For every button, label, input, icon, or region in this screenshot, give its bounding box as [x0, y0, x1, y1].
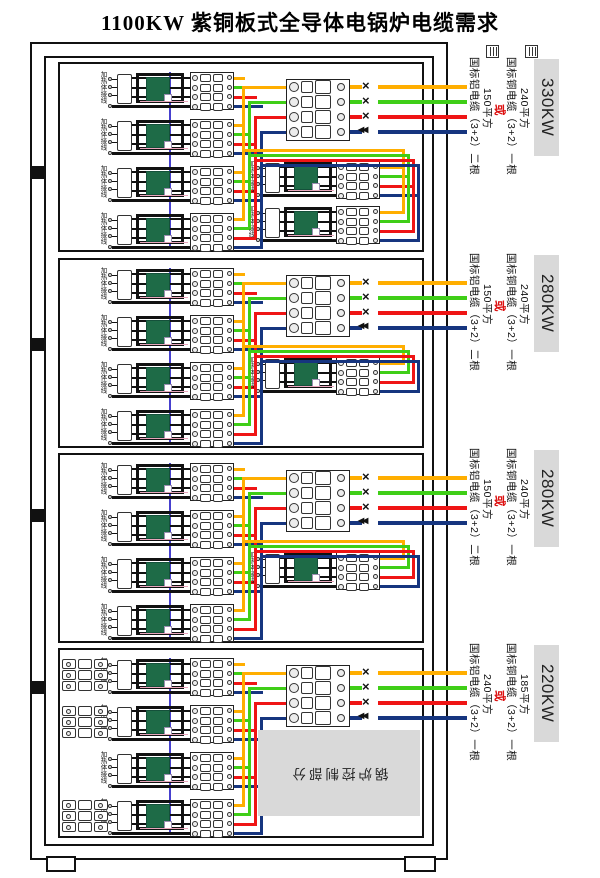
breaker-switch-body: [117, 801, 132, 831]
breaker-switch-body: [78, 822, 92, 832]
breaker-switch-body: [213, 121, 223, 129]
terminal-circle: [338, 219, 344, 225]
terminal-circle: [338, 379, 344, 385]
terminal-circle: [192, 495, 198, 501]
breaker-switch-body: [200, 726, 211, 734]
terminal-circle: [192, 617, 198, 623]
terminal-circle: [373, 209, 378, 214]
wire-blue-loop: [260, 555, 420, 558]
breaker-switch-body: [213, 178, 223, 186]
terminal-circle: [338, 183, 344, 189]
terminal-circle: [373, 238, 378, 243]
breaker-switch-body: [346, 237, 357, 245]
wire-red-loop: [254, 159, 415, 162]
breaker-switch-body: [78, 670, 92, 680]
terminal-circle: [227, 122, 232, 127]
terminal-circle: [337, 474, 345, 482]
heater-unit-label: 加热体接线: [97, 361, 106, 394]
terminal-circle: [192, 727, 198, 733]
copper-size-label: 240平方: [518, 479, 530, 520]
terminal-circle: [227, 85, 232, 90]
wire-red: [380, 576, 415, 579]
wire-red-out: [378, 115, 467, 119]
breaker-switch-body: [200, 820, 211, 828]
terminal-circle: [192, 708, 198, 714]
wire-green-trunk: [248, 493, 251, 620]
breaker-switch-body: [200, 541, 211, 549]
wire-pink: [140, 148, 188, 150]
terminal-circle: [227, 290, 232, 295]
wire-pink: [140, 828, 188, 830]
wire-pink: [288, 386, 334, 388]
breaker-switch-body: [213, 187, 223, 195]
breaker-switch-body: [301, 682, 313, 694]
wire-blue: [234, 246, 263, 249]
wire-black-bottom: [112, 246, 190, 248]
breaker-switch-body: [213, 299, 223, 307]
breaker-switch-body: [346, 573, 357, 581]
terminal-circle: [289, 82, 299, 92]
terminal-circle: [192, 94, 198, 100]
cable-joint-symbol: ×: [362, 78, 370, 93]
breaker-switch-body: [200, 364, 211, 372]
terminal-circle: [192, 802, 198, 808]
breaker-switch-body: [213, 131, 223, 139]
terminal-circle: [289, 503, 299, 513]
wire-black-bottom: [260, 390, 336, 392]
terminal-circle: [337, 714, 345, 722]
breaker-switch-body: [315, 471, 331, 485]
breaker-switch-body: [200, 512, 211, 520]
terminal-circle: [338, 584, 344, 590]
wire-blue: [260, 327, 286, 330]
breaker-switch-body: [359, 173, 369, 181]
terminal-circle: [227, 104, 232, 109]
breaker-switch-body: [117, 364, 132, 394]
terminal-circle: [373, 228, 378, 233]
breaker-switch-body: [200, 830, 211, 838]
terminal-circle: [227, 226, 232, 231]
wire-blue-out: [378, 326, 467, 330]
terminal-circle: [192, 188, 198, 194]
terminal-circle: [337, 699, 345, 707]
breaker-switch-body: [200, 811, 211, 819]
breaker-switch-body: [301, 96, 313, 108]
breaker-switch-body: [200, 606, 211, 614]
wire-pink: [140, 438, 188, 440]
breaker-switch-body: [213, 707, 223, 715]
breaker-switch-body: [213, 670, 223, 678]
breaker-switch-body: [346, 388, 357, 396]
terminal-circle: [192, 235, 198, 241]
breaker-switch-body: [359, 227, 369, 235]
heater-unit-label: 加热体接线: [97, 556, 106, 589]
breaker-switch-body: [315, 516, 331, 530]
terminal-circle: [338, 209, 344, 215]
breaker-switch-body: [213, 736, 223, 744]
heater-unit-label: 加热体接线: [97, 603, 106, 636]
wire-pink: [288, 235, 334, 237]
terminal-circle: [227, 179, 232, 184]
wire-red-out: [350, 311, 362, 315]
breaker-switch-body: [213, 197, 223, 205]
wire-pink: [140, 687, 188, 689]
terminal-circle: [227, 542, 232, 547]
terminal-circle: [192, 626, 198, 632]
breaker-switch-body: [117, 121, 132, 151]
copper-size-label: 240平方: [518, 284, 530, 325]
breaker-switch-body: [301, 487, 313, 499]
terminal-circle: [338, 174, 344, 180]
terminal-circle: [192, 661, 198, 667]
wire-black-bottom: [260, 585, 336, 587]
wire-pink: [140, 242, 188, 244]
terminal-circle: [338, 389, 344, 395]
wire-yellow-out: [350, 85, 362, 89]
breaker-switch-body: [200, 801, 211, 809]
terminal-circle: [192, 523, 198, 529]
wire-black-bottom: [112, 301, 190, 303]
breaker-switch-body: [315, 501, 331, 515]
breaker-switch-body: [200, 736, 211, 744]
terminal-circle: [227, 727, 232, 732]
wire-blue-loop: [260, 164, 420, 167]
breaker-switch-body: [359, 369, 369, 377]
breaker-switch-body: [346, 378, 357, 386]
breaker-switch-body: [213, 150, 223, 158]
terminal-circle: [289, 323, 299, 333]
breaker-switch-body: [213, 522, 223, 530]
terminal-circle: [192, 271, 198, 277]
or-label: 或: [492, 690, 505, 702]
terminal-circle: [289, 112, 299, 122]
breaker-switch-body: [117, 270, 132, 300]
terminal-circle: [227, 755, 232, 760]
terminal-circle: [227, 75, 232, 80]
breaker-switch-body: [213, 569, 223, 577]
terminal-circle: [192, 122, 198, 128]
breaker-switch-body: [200, 197, 211, 205]
copper-cable-label: 国标铜电缆（3+2）一根: [505, 57, 517, 175]
cable-core-line: [496, 47, 497, 56]
terminal-circle: [227, 495, 232, 500]
copper-cable-label: 国标铜电缆（3+2）一根: [505, 253, 517, 371]
breaker-switch-body: [213, 215, 223, 223]
breaker-switch-body: [200, 475, 211, 483]
breaker-switch-body: [200, 327, 211, 335]
breaker-switch-body: [301, 667, 313, 679]
breaker-switch-body: [213, 93, 223, 101]
breaker-switch-body: [315, 80, 331, 94]
breaker-switch-body: [346, 583, 357, 591]
wire-red-trunk: [254, 313, 257, 434]
terminal-circle: [337, 83, 345, 91]
breaker-switch-body: [359, 208, 369, 216]
wire-red: [254, 507, 286, 510]
terminal-circle: [227, 513, 232, 518]
terminal-circle: [227, 812, 232, 817]
wire-pink: [140, 586, 188, 588]
cable-core-line: [493, 47, 494, 56]
breaker-switch-body: [213, 512, 223, 520]
wire-red: [254, 312, 286, 315]
breaker-switch-body: [213, 84, 223, 92]
breaker-switch-body: [213, 364, 223, 372]
terminal-circle: [227, 281, 232, 286]
terminal-circle: [373, 370, 378, 375]
terminal-circle: [98, 673, 103, 678]
terminal-circle: [192, 560, 198, 566]
wire-red: [234, 487, 257, 490]
breaker-switch-body: [200, 93, 211, 101]
breaker-switch-body: [315, 696, 331, 710]
terminal-circle: [98, 662, 103, 667]
breaker-switch-body: [200, 531, 211, 539]
breaker-switch-body: [200, 74, 211, 82]
wire-black-bottom: [260, 239, 336, 241]
wire-green: [248, 297, 286, 300]
copper-cable-label: 国标铜电缆（3+2）一根: [505, 448, 517, 566]
wire-green-trunk: [248, 688, 251, 815]
terminal-circle: [227, 784, 232, 789]
terminal-circle: [192, 104, 198, 110]
alt-cable-label: 国标铝电缆（3+2）一根: [468, 643, 480, 761]
breaker-switch-body: [359, 388, 369, 396]
terminal-circle: [192, 198, 198, 204]
terminal-circle: [227, 412, 232, 417]
breaker-switch-body: [213, 289, 223, 297]
terminal-circle: [227, 94, 232, 99]
wire-yellow-trunk: [242, 673, 245, 805]
terminal-circle: [227, 718, 232, 723]
breaker-switch-body: [200, 150, 211, 158]
breaker-switch-body: [117, 512, 132, 542]
terminal-circle: [227, 671, 232, 676]
copper-cable-label: 国标铜电缆（3+2）一根: [505, 643, 517, 761]
wire-yellow-out: [378, 476, 467, 480]
terminal-circle: [227, 476, 232, 481]
wire-yellow: [242, 672, 286, 675]
wire-blue-trunk-right: [417, 165, 420, 241]
wire-black-bottom: [112, 832, 190, 834]
terminal-circle: [337, 489, 345, 497]
wire-green-out: [350, 686, 362, 690]
terminal-circle: [373, 389, 378, 394]
terminal-circle: [192, 281, 198, 287]
terminal-circle: [337, 684, 345, 692]
terminal-circle: [227, 422, 232, 427]
wire-black-bottom: [112, 691, 190, 693]
breaker-switch-body: [213, 374, 223, 382]
terminal-circle: [192, 245, 198, 251]
terminal-circle: [227, 245, 232, 250]
terminal-circle: [192, 300, 198, 306]
wire-red: [380, 230, 415, 233]
terminal-circle: [227, 169, 232, 174]
heater-unit-label: 加热体接线: [97, 314, 106, 347]
breaker-switch-body: [200, 522, 211, 530]
heater-unit-label: 加热体接线: [97, 509, 106, 542]
terminal-circle: [338, 238, 344, 244]
breaker-switch-body: [301, 126, 313, 138]
terminal-circle: [227, 560, 232, 565]
terminal-circle: [227, 132, 232, 137]
wire-blue: [234, 637, 263, 640]
terminal-circle: [337, 324, 345, 332]
breaker-switch-body: [200, 346, 211, 354]
terminal-circle: [98, 825, 103, 830]
breaker-switch-body: [213, 383, 223, 391]
terminal-circle: [373, 183, 378, 188]
wire-green-out: [378, 491, 467, 495]
wire-yellow: [234, 77, 245, 80]
terminal-circle: [227, 617, 232, 622]
wire-red: [234, 292, 257, 295]
terminal-circle: [98, 814, 103, 819]
wire-pink: [140, 391, 188, 393]
wire-blue-out: [378, 130, 467, 134]
breaker-switch-body: [200, 121, 211, 129]
terminal-circle: [66, 720, 71, 725]
breaker-switch-body: [359, 192, 369, 200]
wire-black-bottom: [112, 543, 190, 545]
terminal-circle: [192, 412, 198, 418]
breaker-switch-body: [213, 346, 223, 354]
terminal-circle: [98, 803, 103, 808]
terminal-circle: [192, 513, 198, 519]
terminal-circle: [227, 337, 232, 342]
wire-yellow-out: [350, 671, 362, 675]
terminal-circle: [227, 821, 232, 826]
cabinet-foot-left: [46, 856, 76, 872]
wire-green: [248, 492, 286, 495]
wire-red-out: [378, 701, 467, 705]
terminal-circle: [227, 570, 232, 575]
terminal-circle: [373, 565, 378, 570]
breaker-switch-body: [359, 378, 369, 386]
terminal-circle: [66, 673, 71, 678]
wire-yellow: [234, 468, 245, 471]
cable-core-line: [535, 47, 536, 56]
breaker-switch-body: [200, 670, 211, 678]
breaker-switch-body: [213, 317, 223, 325]
terminal-circle: [227, 523, 232, 528]
terminal-circle: [192, 422, 198, 428]
terminal-circle: [227, 394, 232, 399]
breaker-switch-body: [301, 502, 313, 514]
terminal-circle: [98, 684, 103, 689]
terminal-circle: [192, 542, 198, 548]
wire-blue: [380, 585, 420, 588]
wire-green: [380, 175, 410, 178]
heater-unit-label: 加热体接线: [97, 462, 106, 495]
breaker-switch-body: [200, 465, 211, 473]
terminal-circle: [289, 308, 299, 318]
wire-black-bottom: [112, 152, 190, 154]
terminal-circle: [192, 812, 198, 818]
breaker-switch-body: [301, 81, 313, 93]
terminal-circle: [192, 328, 198, 334]
control-box: 锅炉控制部分: [258, 730, 420, 816]
terminal-circle: [289, 518, 299, 528]
breaker-switch-body: [265, 208, 280, 238]
terminal-circle: [98, 709, 103, 714]
cable-core-line: [532, 47, 533, 56]
breaker-switch-body: [213, 660, 223, 668]
breaker-switch-body: [346, 192, 357, 200]
terminal-circle: [192, 690, 198, 696]
breaker-switch-body: [200, 660, 211, 668]
wire-green: [248, 687, 286, 690]
wire-green-out: [378, 296, 467, 300]
breaker-switch-body: [200, 299, 211, 307]
breaker-switch-body: [315, 95, 331, 109]
terminal-circle: [192, 151, 198, 157]
breaker-switch-body: [117, 707, 132, 737]
wire-red: [254, 116, 286, 119]
wire-pink: [140, 539, 188, 541]
breaker-switch-body: [117, 559, 132, 589]
terminal-circle: [337, 113, 345, 121]
wire-green-loop: [248, 154, 410, 157]
power-rating-label: 220KW: [537, 664, 557, 722]
breaker-switch-body: [315, 486, 331, 500]
wire-red-trunk: [254, 703, 257, 824]
breaker-switch-body: [301, 712, 313, 724]
terminal-circle: [192, 636, 198, 642]
terminal-circle: [338, 370, 344, 376]
cable-core-line: [529, 47, 530, 56]
terminal-circle: [192, 579, 198, 585]
breaker-switch-body: [213, 717, 223, 725]
terminal-circle: [337, 279, 345, 287]
breaker-switch-body: [213, 440, 223, 448]
terminal-circle: [373, 219, 378, 224]
alt-cable-label: 国标铝电缆（3+2）二根: [468, 448, 480, 566]
breaker-switch-body: [213, 280, 223, 288]
breaker-switch-body: [213, 811, 223, 819]
breaker-switch-body: [200, 270, 211, 278]
wire-green-loop: [248, 545, 410, 548]
terminal-circle: [227, 300, 232, 305]
breaker-switch-body: [213, 336, 223, 344]
breaker-switch-body: [301, 517, 313, 529]
wire-green-out: [378, 686, 467, 690]
terminal-circle: [227, 318, 232, 323]
terminal-circle: [337, 669, 345, 677]
breaker-switch-body: [213, 74, 223, 82]
terminal-circle: [66, 684, 71, 689]
terminal-circle: [192, 441, 198, 447]
terminal-circle: [227, 271, 232, 276]
breaker-switch-body: [200, 689, 211, 697]
breaker-switch-body: [213, 421, 223, 429]
wire-pink: [140, 492, 188, 494]
breaker-switch-body: [78, 800, 92, 810]
breaker-switch-body: [200, 393, 211, 401]
breaker-switch-body: [213, 225, 223, 233]
breaker-switch-body: [213, 726, 223, 734]
terminal-circle: [227, 680, 232, 685]
terminal-circle: [98, 720, 103, 725]
power-rating-label: 330KW: [537, 78, 557, 136]
breaker-switch-body: [213, 494, 223, 502]
wire-red-out: [350, 115, 362, 119]
breaker-switch-body: [200, 588, 211, 596]
terminal-circle: [227, 690, 232, 695]
cable-joint-symbol: ×: [362, 664, 370, 679]
control-box-label: 锅炉控制部分: [258, 730, 420, 816]
